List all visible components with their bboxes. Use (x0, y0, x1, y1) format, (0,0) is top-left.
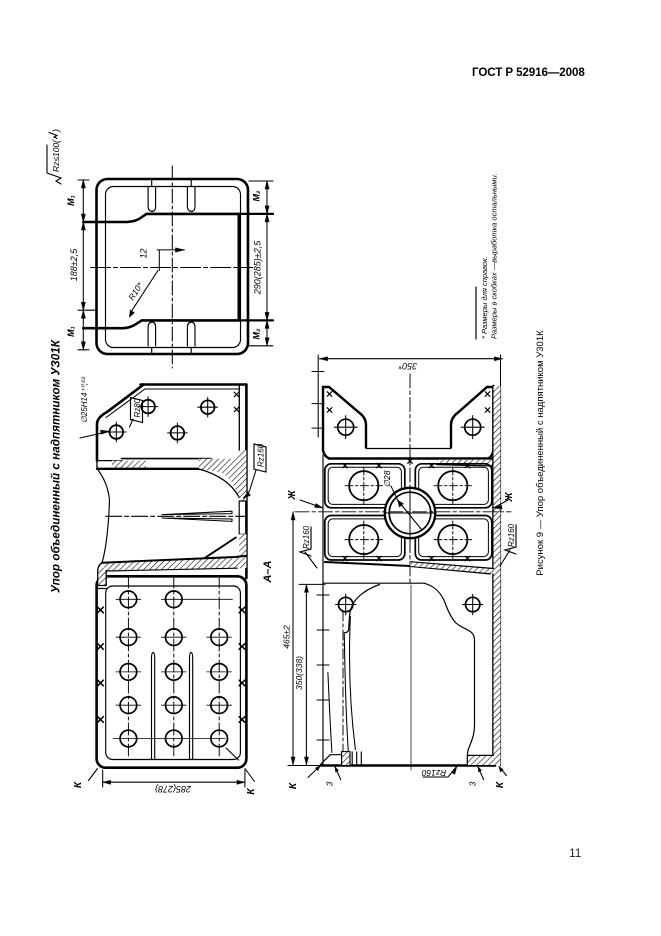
svg-text:350(338): 350(338) (294, 656, 304, 690)
svg-text:12: 12 (139, 248, 149, 258)
svg-text:Размеры в скобках —выработка о: Размеры в скобках —выработка остальными. (490, 173, 499, 339)
svg-text:К: К (246, 788, 257, 795)
svg-text:188±2,5: 188±2,5 (69, 248, 79, 281)
svg-text:3: 3 (325, 781, 335, 786)
svg-text:Упор объединенный с надпятнико: Упор объединенный с надпятником УЗ01К (50, 339, 63, 593)
svg-text:Ж: Ж (287, 490, 298, 501)
svg-text:М₂: М₂ (252, 190, 262, 201)
svg-text:465±2: 465±2 (282, 625, 292, 649)
svg-text:290(285)±2,5: 290(285)±2,5 (253, 240, 263, 295)
svg-text:Rz160: Rz160 (257, 443, 266, 467)
svg-text:∅25Н14⁺⁰,⁶²: ∅25Н14⁺⁰,⁶² (80, 377, 89, 424)
svg-text:): ) (51, 129, 61, 133)
svg-text:3: 3 (468, 781, 478, 786)
svg-text:* Размеры для справок.: * Размеры для справок. (480, 256, 489, 339)
svg-text:А–А: А–А (262, 560, 274, 583)
svg-text:К: К (495, 781, 506, 788)
svg-text:М₁: М₁ (66, 326, 76, 337)
svg-text:350*: 350* (398, 361, 417, 371)
svg-text:М₁: М₁ (66, 195, 76, 206)
svg-text:R10*: R10* (126, 280, 145, 302)
svg-text:(: ( (51, 139, 61, 143)
svg-text:Rz80: Rz80 (133, 398, 142, 417)
svg-text:К: К (73, 781, 84, 788)
svg-text:285(278): 285(278) (155, 784, 192, 794)
svg-text:Rz160: Rz160 (507, 523, 516, 547)
svg-text:М₂: М₂ (252, 328, 262, 339)
svg-text:Рисунок 9 — Упор объединенный: Рисунок 9 — Упор объединенный с надпятни… (535, 330, 546, 576)
svg-text:∅28: ∅28 (382, 470, 392, 487)
svg-text:Rz≤100: Rz≤100 (51, 142, 61, 172)
svg-text:Rz160: Rz160 (302, 525, 311, 549)
svg-text:К: К (288, 782, 299, 789)
